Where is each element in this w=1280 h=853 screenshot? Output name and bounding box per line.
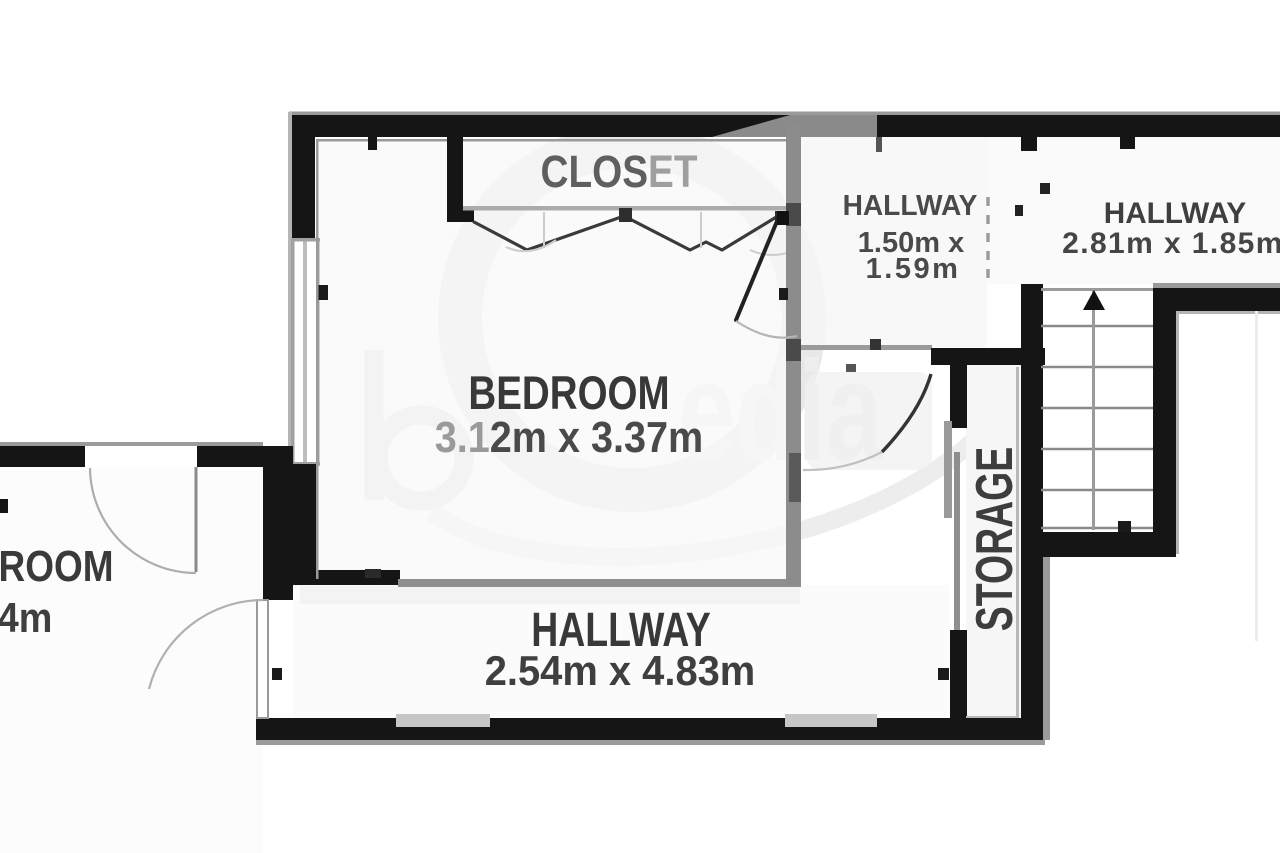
svg-text:HALLWAY: HALLWAY [843, 190, 978, 222]
svg-text:2.54m x 4.83m: 2.54m x 4.83m [485, 647, 756, 694]
svg-text:STORAGE: STORAGE [965, 447, 1024, 631]
svg-text:ROOM: ROOM [0, 541, 113, 591]
svg-text:1.59m: 1.59m [866, 253, 961, 285]
svg-text:4m: 4m [0, 595, 52, 641]
svg-text:HALLWAY: HALLWAY [1104, 197, 1247, 230]
svg-text:CLOSET: CLOSET [541, 146, 698, 196]
svg-text:3.12m x 3.37m: 3.12m x 3.37m [435, 412, 704, 461]
svg-text:2.81m x 1.85m: 2.81m x 1.85m [1062, 227, 1280, 260]
